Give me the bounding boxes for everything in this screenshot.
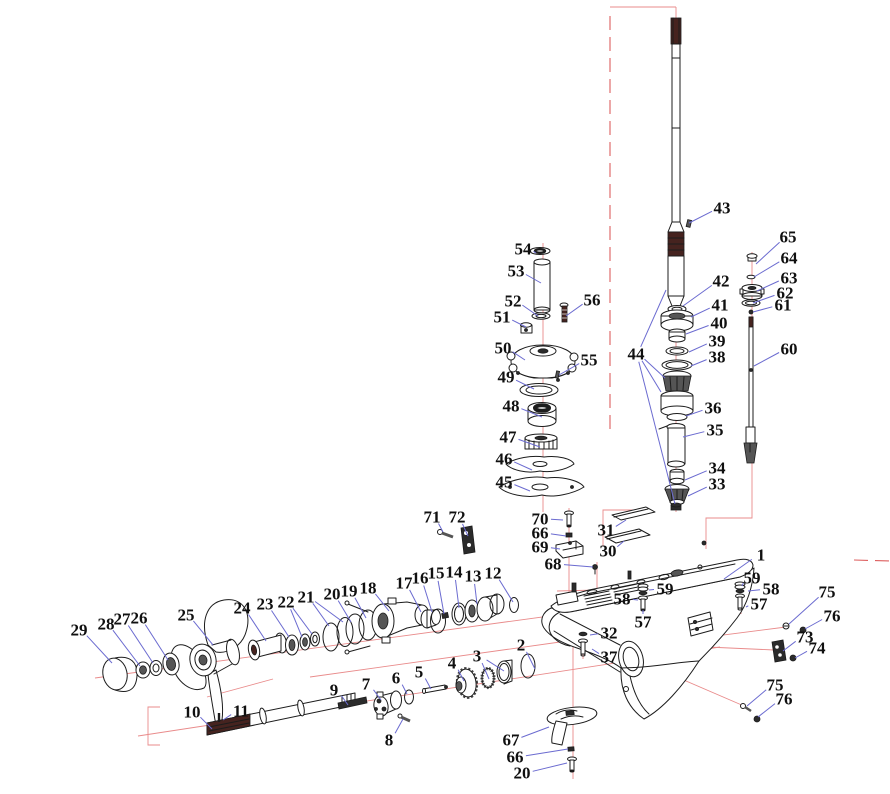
leader-line-6	[402, 685, 407, 694]
bearing-23	[286, 635, 299, 655]
pin-8	[398, 714, 410, 721]
callout-25-24: 25	[178, 606, 195, 625]
driveshaft-bearing-stack	[659, 306, 693, 511]
key-15	[442, 612, 449, 618]
callout-39-38: 39	[709, 332, 726, 351]
leader-line-41	[691, 308, 710, 317]
leader-line-31	[616, 520, 626, 526]
callout-26-25: 26	[131, 609, 148, 628]
callout-10-9: 10	[184, 703, 201, 722]
leader-line-70	[551, 519, 563, 520]
key-51	[521, 323, 533, 333]
callout-56-55: 56	[584, 291, 601, 310]
gasket-46	[506, 456, 574, 472]
leader-line-73	[783, 641, 796, 651]
plunger-5	[423, 685, 448, 694]
callout-34-33: 34	[709, 459, 727, 478]
callout-20-19: 20	[324, 585, 341, 604]
callout-54-53: 54	[515, 240, 533, 259]
callout-75-79: 75	[819, 583, 836, 602]
prop-hardware	[100, 594, 519, 692]
leader-line-68	[564, 565, 593, 567]
washer-64	[747, 275, 755, 279]
stud-56	[560, 303, 568, 322]
callout-72-76: 72	[449, 508, 466, 527]
clip-61	[749, 310, 753, 314]
callout-44-43: 44	[628, 345, 646, 364]
callout-15-14: 15	[428, 564, 445, 583]
callout-64-66: 64	[781, 249, 799, 268]
callout-41-40: 41	[712, 296, 729, 315]
callout-1-0: 1	[757, 546, 766, 565]
nut-76-lower	[754, 716, 760, 722]
callout-69-73: 69	[532, 538, 549, 557]
seal-66	[566, 533, 572, 537]
screw-75-upper	[783, 623, 789, 629]
callout-53-52: 53	[508, 262, 525, 281]
callout-45-44: 45	[496, 473, 513, 492]
callout-60-62: 60	[781, 340, 798, 359]
callout-59-58: 59	[657, 580, 674, 599]
leader-line-75	[747, 690, 766, 706]
bearing-carrier-18	[345, 598, 429, 654]
bushing-34	[670, 469, 684, 484]
driveshaft	[668, 18, 692, 306]
callout-19-18: 19	[341, 582, 358, 601]
leader-line-33	[688, 487, 707, 496]
callout-7-6: 7	[362, 675, 371, 694]
callout-12-11: 12	[485, 564, 502, 583]
bolt-70	[565, 511, 574, 527]
diagram-canvas: 1234567891011121314151617181920212223242…	[0, 0, 890, 794]
leader-line-74	[795, 651, 807, 658]
o-ring-21a	[323, 623, 339, 651]
sleeve-35	[659, 424, 685, 468]
callout-50-49: 50	[495, 339, 512, 358]
leader-line-5	[425, 679, 431, 690]
callout-layer: 1234567891011121314151617181920212223242…	[71, 199, 841, 783]
callout-18-17: 18	[360, 579, 377, 598]
clutch-dog-7	[372, 691, 401, 719]
leader-line-75	[789, 597, 819, 624]
callout-70-74: 70	[532, 510, 549, 529]
callout-9-8: 9	[330, 681, 339, 700]
washer-66b	[568, 747, 574, 752]
callout-22-21: 22	[278, 593, 295, 612]
spacer-24	[247, 632, 288, 661]
trim-tab-assembly	[546, 705, 598, 772]
bearing-13	[465, 594, 504, 622]
leader-line-34	[685, 471, 707, 480]
callout-46-45: 46	[496, 450, 513, 469]
impeller-48	[528, 403, 556, 427]
callout-65-67: 65	[780, 228, 797, 247]
pump-housing-50	[507, 345, 578, 378]
callout-4-3: 4	[448, 654, 457, 673]
callout-11-10: 11	[233, 702, 249, 721]
callout-57-56: 57	[635, 613, 653, 632]
leader-line-44	[645, 359, 666, 378]
callout-74-78: 74	[809, 639, 827, 658]
washer-32	[579, 632, 587, 636]
leader-line-66	[526, 749, 568, 756]
exploded-parts-diagram: 1234567891011121314151617181920212223242…	[0, 0, 890, 794]
leader-line-66	[551, 534, 566, 536]
leader-line-60	[754, 353, 779, 367]
pin-43	[686, 220, 692, 228]
leader-line-43	[689, 211, 712, 223]
callout-43-42: 43	[714, 199, 731, 218]
callout-6-5: 6	[392, 669, 401, 688]
leader-line-24	[249, 615, 267, 642]
callout-2-1: 2	[517, 636, 526, 655]
callout-59-61: 59	[744, 569, 761, 588]
prop-cone-29	[100, 656, 137, 692]
leader-line-8	[395, 719, 403, 733]
callout-58-60: 58	[763, 580, 780, 599]
cam-31	[612, 507, 655, 520]
callout-20-71: 20	[514, 764, 531, 783]
callout-42-41: 42	[713, 272, 730, 291]
leader-line-29	[87, 636, 112, 663]
leader-line-12	[499, 580, 513, 602]
o-ring-12	[510, 598, 519, 613]
callout-36-35: 36	[705, 399, 722, 418]
leader-line-76	[805, 620, 822, 630]
bolt-71	[438, 530, 454, 538]
callout-14-13: 14	[446, 563, 464, 582]
leader-line-59	[649, 590, 654, 591]
callout-76-82: 76	[776, 690, 793, 709]
callout-24-23: 24	[234, 599, 252, 618]
callout-16-15: 16	[412, 569, 429, 588]
callout-29-28: 29	[71, 621, 88, 640]
callout-49-48: 49	[498, 368, 515, 387]
anode-bracket-73	[772, 640, 786, 662]
screw-75-lower	[741, 704, 752, 712]
pump-liner-47	[525, 434, 557, 449]
ring-36	[667, 414, 687, 421]
leader-line-42	[683, 285, 712, 306]
prop-shaft-row	[207, 654, 535, 735]
callout-35-34: 35	[707, 421, 724, 440]
bolt-20b	[568, 757, 577, 772]
callout-27-26: 27	[114, 610, 132, 629]
leader-line-57	[746, 606, 748, 607]
callout-40-39: 40	[711, 314, 728, 333]
shift-rod-60	[744, 317, 757, 463]
leader-line-26	[145, 625, 168, 660]
callout-68-72: 68	[545, 555, 562, 574]
o-ring-2	[521, 654, 535, 678]
leader-line-67	[521, 727, 549, 737]
leader-line-35	[683, 432, 704, 437]
callout-76-80: 76	[824, 607, 841, 626]
callout-30-29: 30	[600, 542, 617, 561]
callout-23-22: 23	[257, 595, 274, 614]
leader-line-76	[758, 704, 775, 717]
pinion-gear-33	[665, 485, 689, 511]
washer-27	[150, 661, 162, 676]
leader-line-20	[533, 763, 567, 771]
callout-13-12: 13	[465, 567, 482, 586]
callout-3-2: 3	[473, 647, 482, 666]
callout-32-31: 32	[601, 624, 618, 643]
callout-58-57: 58	[614, 590, 631, 609]
washers-22	[300, 632, 320, 650]
callout-63-65: 63	[781, 269, 798, 288]
callout-48-47: 48	[503, 397, 520, 416]
tube-53	[534, 259, 550, 313]
leader-line-56	[566, 304, 583, 316]
callout-52-51: 52	[505, 292, 522, 311]
leader-line-61	[753, 307, 772, 312]
callout-31-30: 31	[598, 521, 615, 540]
callout-71-75: 71	[424, 508, 441, 527]
callout-55-54: 55	[581, 351, 598, 370]
prop-nut-28	[136, 662, 150, 678]
leader-line-21	[313, 603, 329, 626]
callout-8-7: 8	[385, 731, 394, 750]
nut-65	[747, 254, 757, 261]
leader-line-64	[754, 262, 779, 277]
callout-5-4: 5	[415, 663, 424, 682]
leader-line-38	[691, 360, 707, 366]
leader-line-65	[756, 242, 780, 264]
callout-21-20: 21	[298, 588, 315, 607]
callout-17-16: 17	[396, 574, 414, 593]
trim-tab-67	[546, 705, 598, 745]
callout-37-36: 37	[601, 648, 619, 667]
callout-28-27: 28	[98, 615, 115, 634]
bracket-72	[461, 526, 475, 554]
shift-rod-stack	[740, 254, 764, 463]
leader-line-58	[633, 600, 638, 601]
leader-line-39	[689, 344, 707, 352]
callout-47-46: 47	[500, 428, 518, 447]
